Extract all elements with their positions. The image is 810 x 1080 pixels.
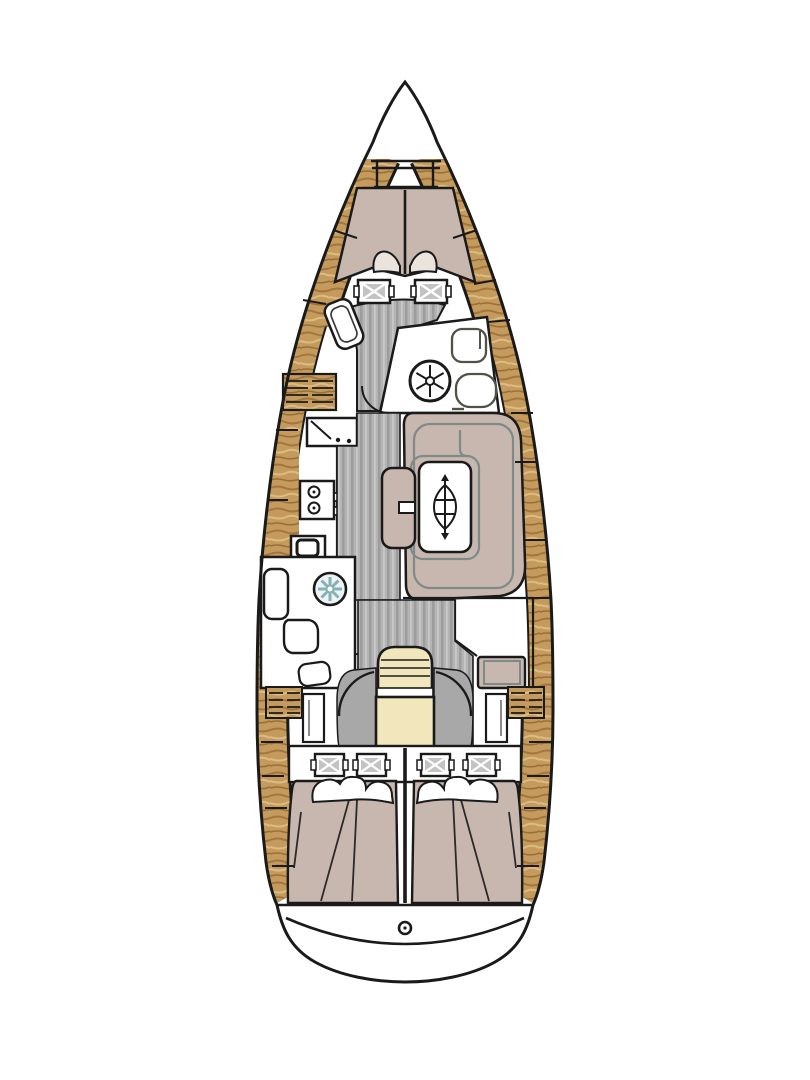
floor-plan-canvas bbox=[0, 0, 810, 1080]
hatch-seat bbox=[411, 280, 451, 303]
starboard-locker bbox=[486, 694, 507, 742]
aft-head-seat bbox=[264, 569, 288, 619]
aft-cabin-port-berth bbox=[288, 777, 398, 903]
port-locker bbox=[303, 694, 324, 742]
aft-toilet bbox=[284, 620, 318, 653]
companionway-steps bbox=[376, 647, 434, 752]
boat-floor-plan bbox=[0, 0, 810, 1080]
v-berth bbox=[335, 188, 475, 282]
louvered-locker-port bbox=[283, 374, 336, 410]
bench-notch bbox=[399, 502, 415, 513]
stove bbox=[300, 481, 341, 519]
fridge-top-load bbox=[307, 418, 357, 446]
step-base bbox=[376, 697, 434, 752]
aft-head-step bbox=[298, 661, 332, 687]
forward-basin bbox=[456, 374, 496, 407]
aft-cabin-starboard-berth bbox=[412, 777, 522, 903]
hatch-seat bbox=[354, 280, 394, 303]
